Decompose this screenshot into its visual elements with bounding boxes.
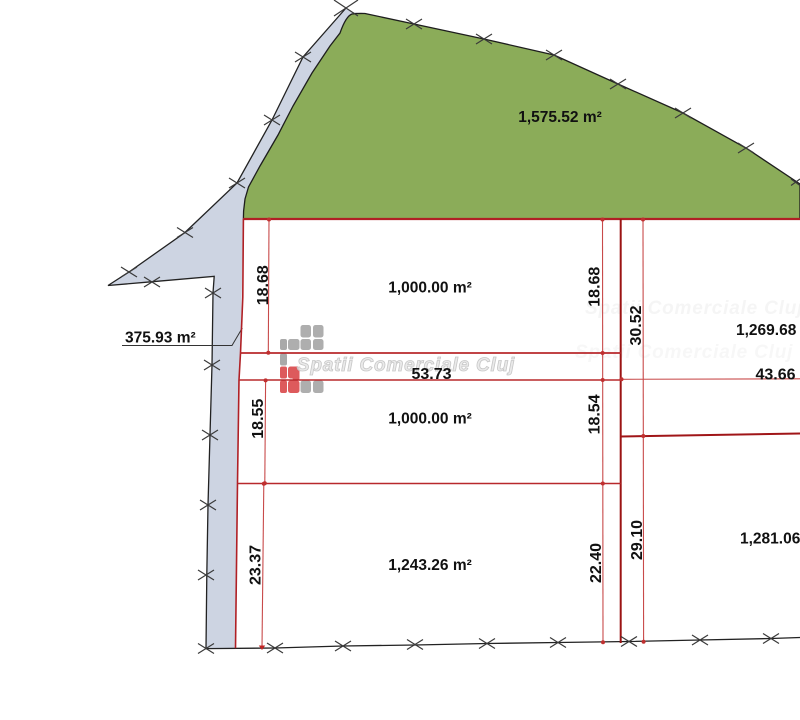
svg-text:Spatii Comerciale Cluj: Spatii Comerciale Cluj bbox=[297, 355, 515, 376]
svg-text:29.10: 29.10 bbox=[629, 520, 646, 560]
svg-text:18.68: 18.68 bbox=[255, 265, 272, 305]
svg-text:22.40: 22.40 bbox=[588, 543, 605, 583]
svg-text:1,281.06 m²: 1,281.06 m² bbox=[740, 531, 800, 548]
svg-text:1,243.26 m²: 1,243.26 m² bbox=[388, 557, 472, 574]
svg-text:1,575.52 m²: 1,575.52 m² bbox=[518, 109, 602, 126]
svg-text:375.93 m²: 375.93 m² bbox=[125, 330, 196, 347]
svg-text:30.52: 30.52 bbox=[628, 305, 645, 345]
svg-text:18.68: 18.68 bbox=[587, 267, 604, 307]
svg-text:18.54: 18.54 bbox=[587, 394, 604, 434]
svg-text:23.37: 23.37 bbox=[248, 545, 265, 585]
svg-text:1,000.00 m²: 1,000.00 m² bbox=[388, 411, 472, 428]
svg-text:53.73: 53.73 bbox=[411, 366, 451, 383]
svg-text:1,000.00 m²: 1,000.00 m² bbox=[388, 280, 472, 297]
svg-text:1,269.68 m²: 1,269.68 m² bbox=[736, 322, 800, 339]
svg-text:43.66: 43.66 bbox=[755, 367, 795, 384]
svg-text:Spatii Comerciale Cluj: Spatii Comerciale Cluj bbox=[585, 298, 800, 319]
svg-text:18.55: 18.55 bbox=[250, 399, 267, 439]
